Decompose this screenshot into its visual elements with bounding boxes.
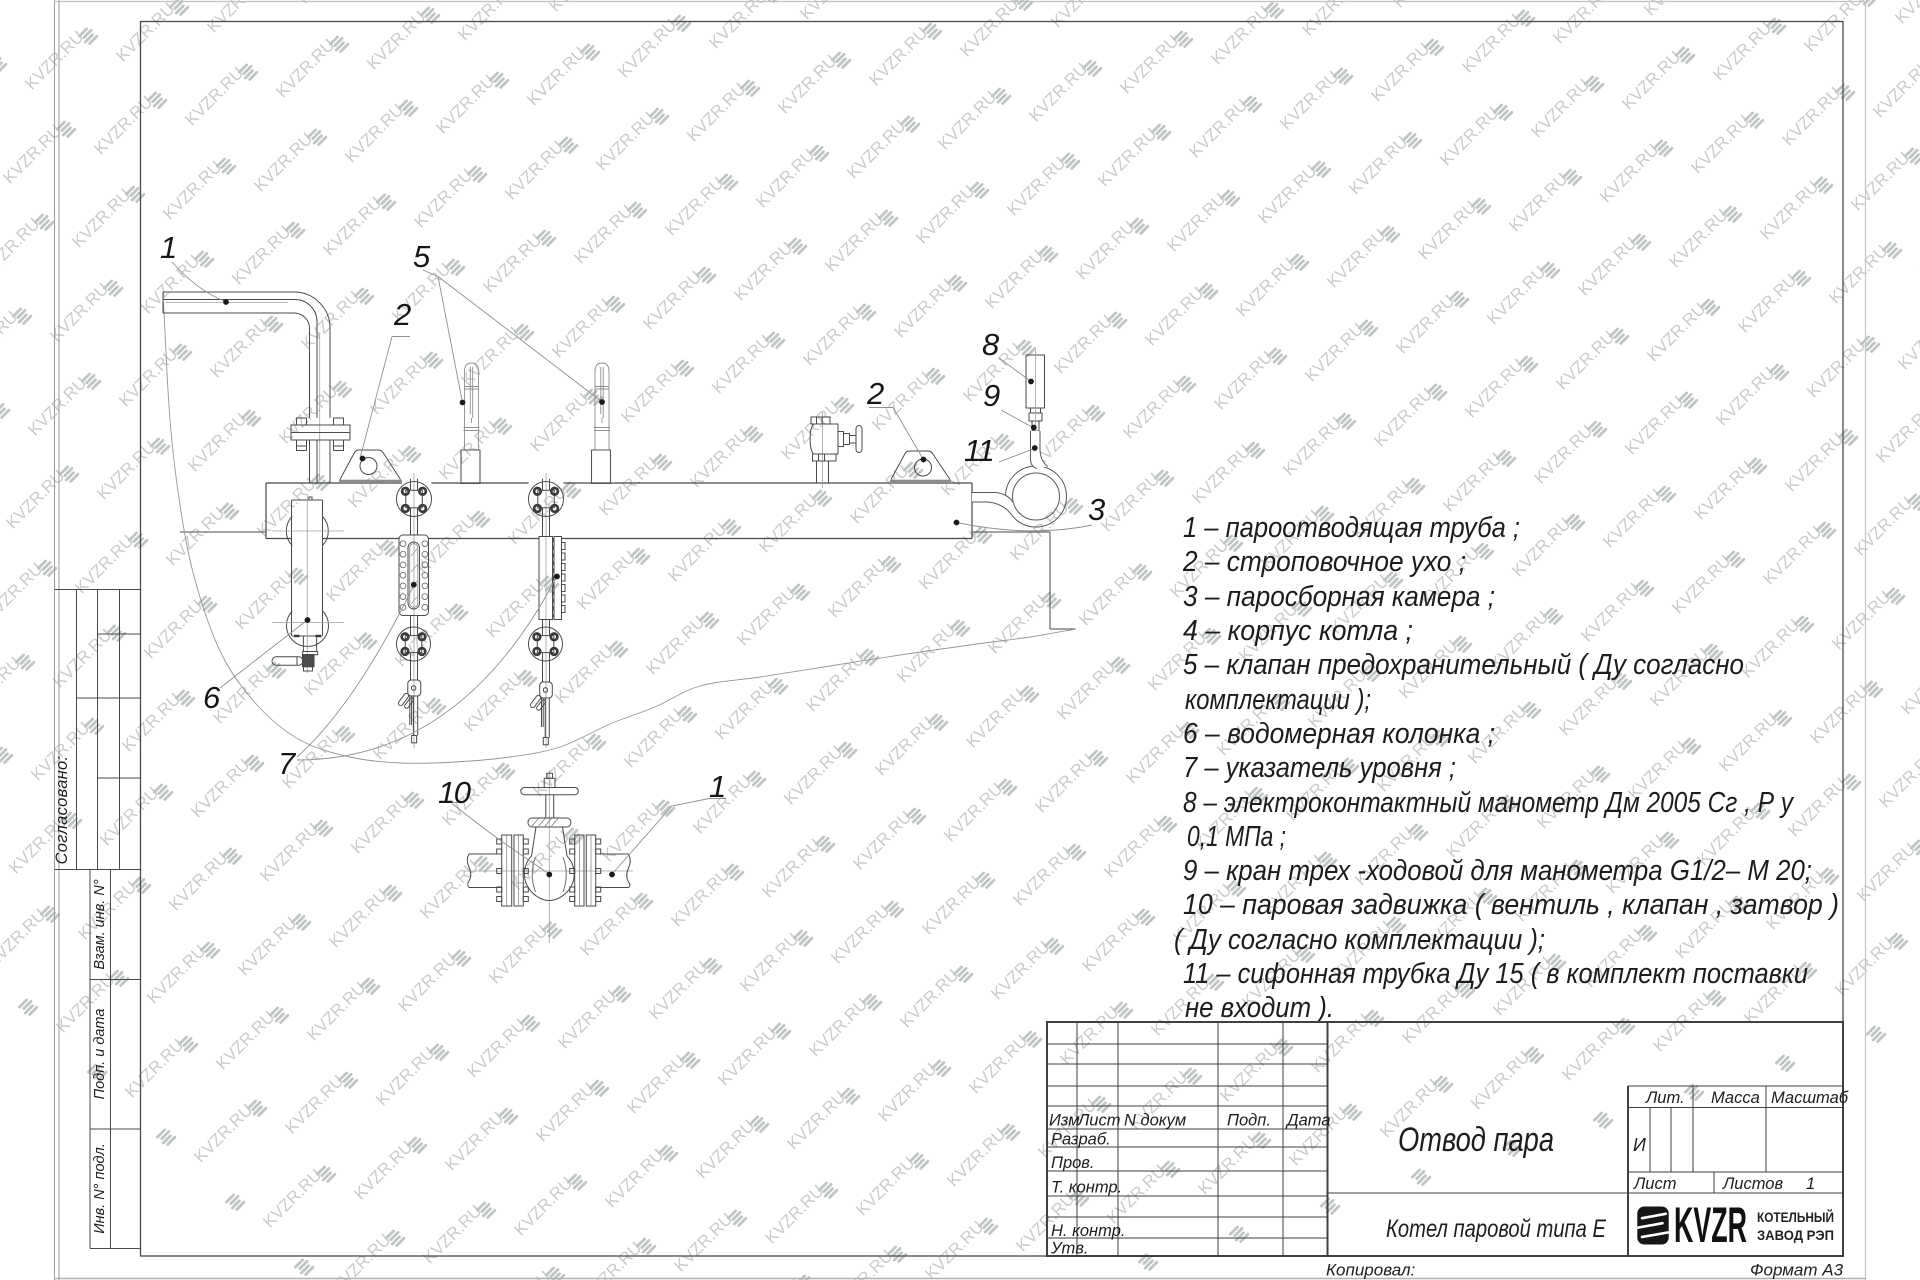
svg-text:Копировал:: Копировал: (1326, 1261, 1416, 1280)
svg-text:7: 7 (278, 746, 297, 781)
svg-text:11: 11 (964, 433, 993, 468)
svg-text:Подп. и дата: Подп. и дата (92, 1009, 108, 1100)
svg-text:Котел паровой типа Е: Котел паровой типа Е (1386, 1215, 1606, 1243)
svg-text:( Ду согласно комплектации );: ( Ду согласно комплектации ); (1174, 924, 1545, 956)
svg-text:комплектации );: комплектации ); (1185, 684, 1371, 716)
svg-text:0,1 МПа ;: 0,1 МПа ; (1187, 821, 1286, 853)
svg-text:Взам. инв. N°: Взам. инв. N° (92, 879, 108, 969)
svg-text:Инв. N° подл.: Инв. N° подл. (92, 1143, 108, 1234)
svg-text:Дата: Дата (1285, 1112, 1331, 1130)
svg-text:7 – указатель уровня ;: 7 – указатель уровня ; (1183, 752, 1456, 784)
svg-text:5: 5 (413, 239, 431, 274)
svg-text:2 – строповочное ухо ;: 2 – строповочное ухо ; (1182, 546, 1466, 578)
svg-text:9: 9 (983, 378, 1000, 413)
svg-text:11 – сифонная трубка Ду 15 (: 11 – сифонная трубка Ду 15 ( в комплект … (1183, 958, 1808, 990)
svg-text:N докум: N докум (1124, 1112, 1186, 1130)
svg-text:2: 2 (393, 297, 411, 332)
svg-text:1: 1 (160, 230, 177, 265)
svg-text:Масштаб: Масштаб (1771, 1089, 1849, 1107)
svg-text:10: 10 (438, 775, 471, 810)
svg-text:1: 1 (709, 769, 726, 804)
svg-text:Изм: Изм (1049, 1112, 1080, 1130)
svg-text:Листов: Листов (1722, 1175, 1783, 1193)
svg-text:Масса: Масса (1711, 1089, 1760, 1107)
svg-text:Лит.: Лит. (1645, 1089, 1685, 1107)
svg-text:И: И (1633, 1135, 1646, 1155)
svg-text:Отвод пара: Отвод пара (1398, 1121, 1554, 1159)
svg-text:8 – электроконтактный манометр: 8 – электроконтактный манометр Дм 2005 С… (1183, 787, 1794, 819)
svg-text:8: 8 (982, 327, 1000, 362)
svg-text:2: 2 (866, 376, 884, 411)
svg-text:Формат А3: Формат А3 (1750, 1261, 1844, 1280)
svg-text:KVZR: KVZR (1674, 1197, 1747, 1253)
svg-text:9 – кран трех -ходовой для ма: 9 – кран трех -ходовой для манометра G1/… (1183, 855, 1812, 887)
svg-text:Согласовано:: Согласовано: (53, 756, 71, 865)
svg-text:Пров.: Пров. (1051, 1154, 1095, 1172)
svg-text:6: 6 (203, 680, 221, 715)
svg-text:Лист: Лист (1633, 1175, 1676, 1193)
svg-text:Разраб.: Разраб. (1051, 1131, 1111, 1149)
svg-text:10 – паровая задвижка ( вент: 10 – паровая задвижка ( вентиль , клапан… (1183, 889, 1839, 921)
svg-text:6 – водомерная колонка ;: 6 – водомерная колонка ; (1183, 718, 1495, 750)
svg-text:Лист: Лист (1077, 1112, 1120, 1130)
svg-text:Подп.: Подп. (1227, 1112, 1271, 1130)
svg-text:Н. контр.: Н. контр. (1051, 1222, 1125, 1240)
svg-text:4 – корпус котла ;: 4 – корпус котла ; (1183, 615, 1413, 647)
svg-text:1: 1 (1806, 1175, 1815, 1193)
svg-text:3 – паросборная камера ;: 3 – паросборная камера ; (1183, 581, 1495, 613)
svg-text:не входит ).: не входит ). (1185, 992, 1334, 1024)
svg-text:Утв.: Утв. (1050, 1240, 1089, 1258)
svg-text:5 – клапан предохранительный: 5 – клапан предохранительный ( Ду соглас… (1183, 649, 1744, 681)
svg-text:1 – пароотводящая труба ;: 1 – пароотводящая труба ; (1183, 512, 1520, 544)
svg-text:Т. контр.: Т. контр. (1051, 1179, 1122, 1197)
svg-text:КОТЕЛЬНЫЙ: КОТЕЛЬНЫЙ (1757, 1208, 1834, 1225)
svg-text:3: 3 (1088, 492, 1105, 527)
svg-text:ЗАВОД РЭП: ЗАВОД РЭП (1757, 1227, 1834, 1243)
